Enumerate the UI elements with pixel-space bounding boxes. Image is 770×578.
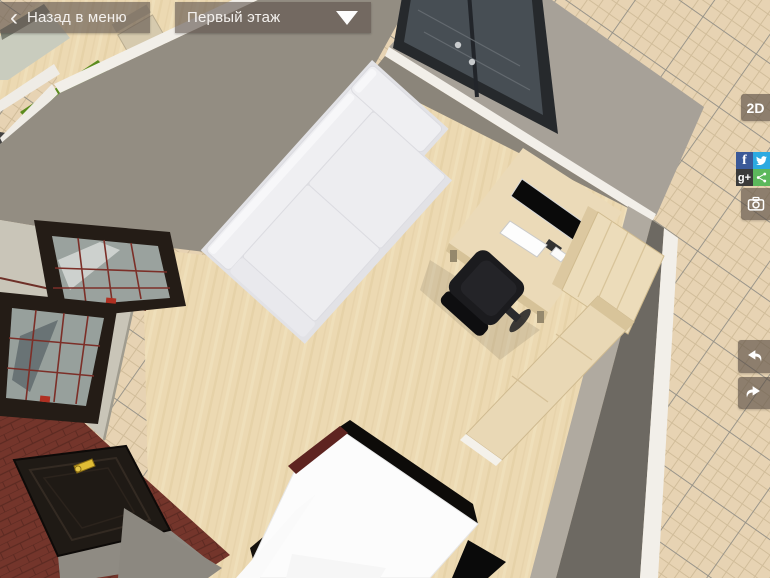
chevron-left-icon: ‹ <box>10 5 18 31</box>
dropdown-triangle-icon <box>336 11 358 25</box>
floor-selector-dropdown[interactable]: Первый этаж <box>175 2 371 33</box>
scene-3d-viewport[interactable] <box>0 0 770 578</box>
screenshot-camera-button[interactable] <box>741 188 770 220</box>
share-icon[interactable] <box>753 169 770 186</box>
facebook-icon[interactable]: f <box>736 152 753 169</box>
social-share-block: f g+ <box>736 152 770 186</box>
window-lower[interactable] <box>0 292 118 424</box>
redo-button[interactable] <box>738 377 770 409</box>
camera-icon <box>746 194 766 214</box>
twitter-icon[interactable] <box>753 152 770 169</box>
share-nodes-icon <box>755 171 768 184</box>
undo-arrow-icon <box>743 346 765 368</box>
google-plus-icon[interactable]: g+ <box>736 169 753 186</box>
view-2d-label: 2D <box>747 100 765 116</box>
back-button-label: Назад в меню <box>27 9 127 26</box>
redo-arrow-icon <box>743 382 765 404</box>
app-window: ‹ Назад в меню Первый этаж 2D f g+ <box>0 0 770 578</box>
floor-selector-value: Первый этаж <box>187 9 280 26</box>
back-to-menu-button[interactable]: ‹ Назад в меню <box>0 2 150 33</box>
undo-button[interactable] <box>738 340 770 373</box>
view-2d-button[interactable]: 2D <box>741 94 770 121</box>
twitter-bird-icon <box>755 154 768 167</box>
